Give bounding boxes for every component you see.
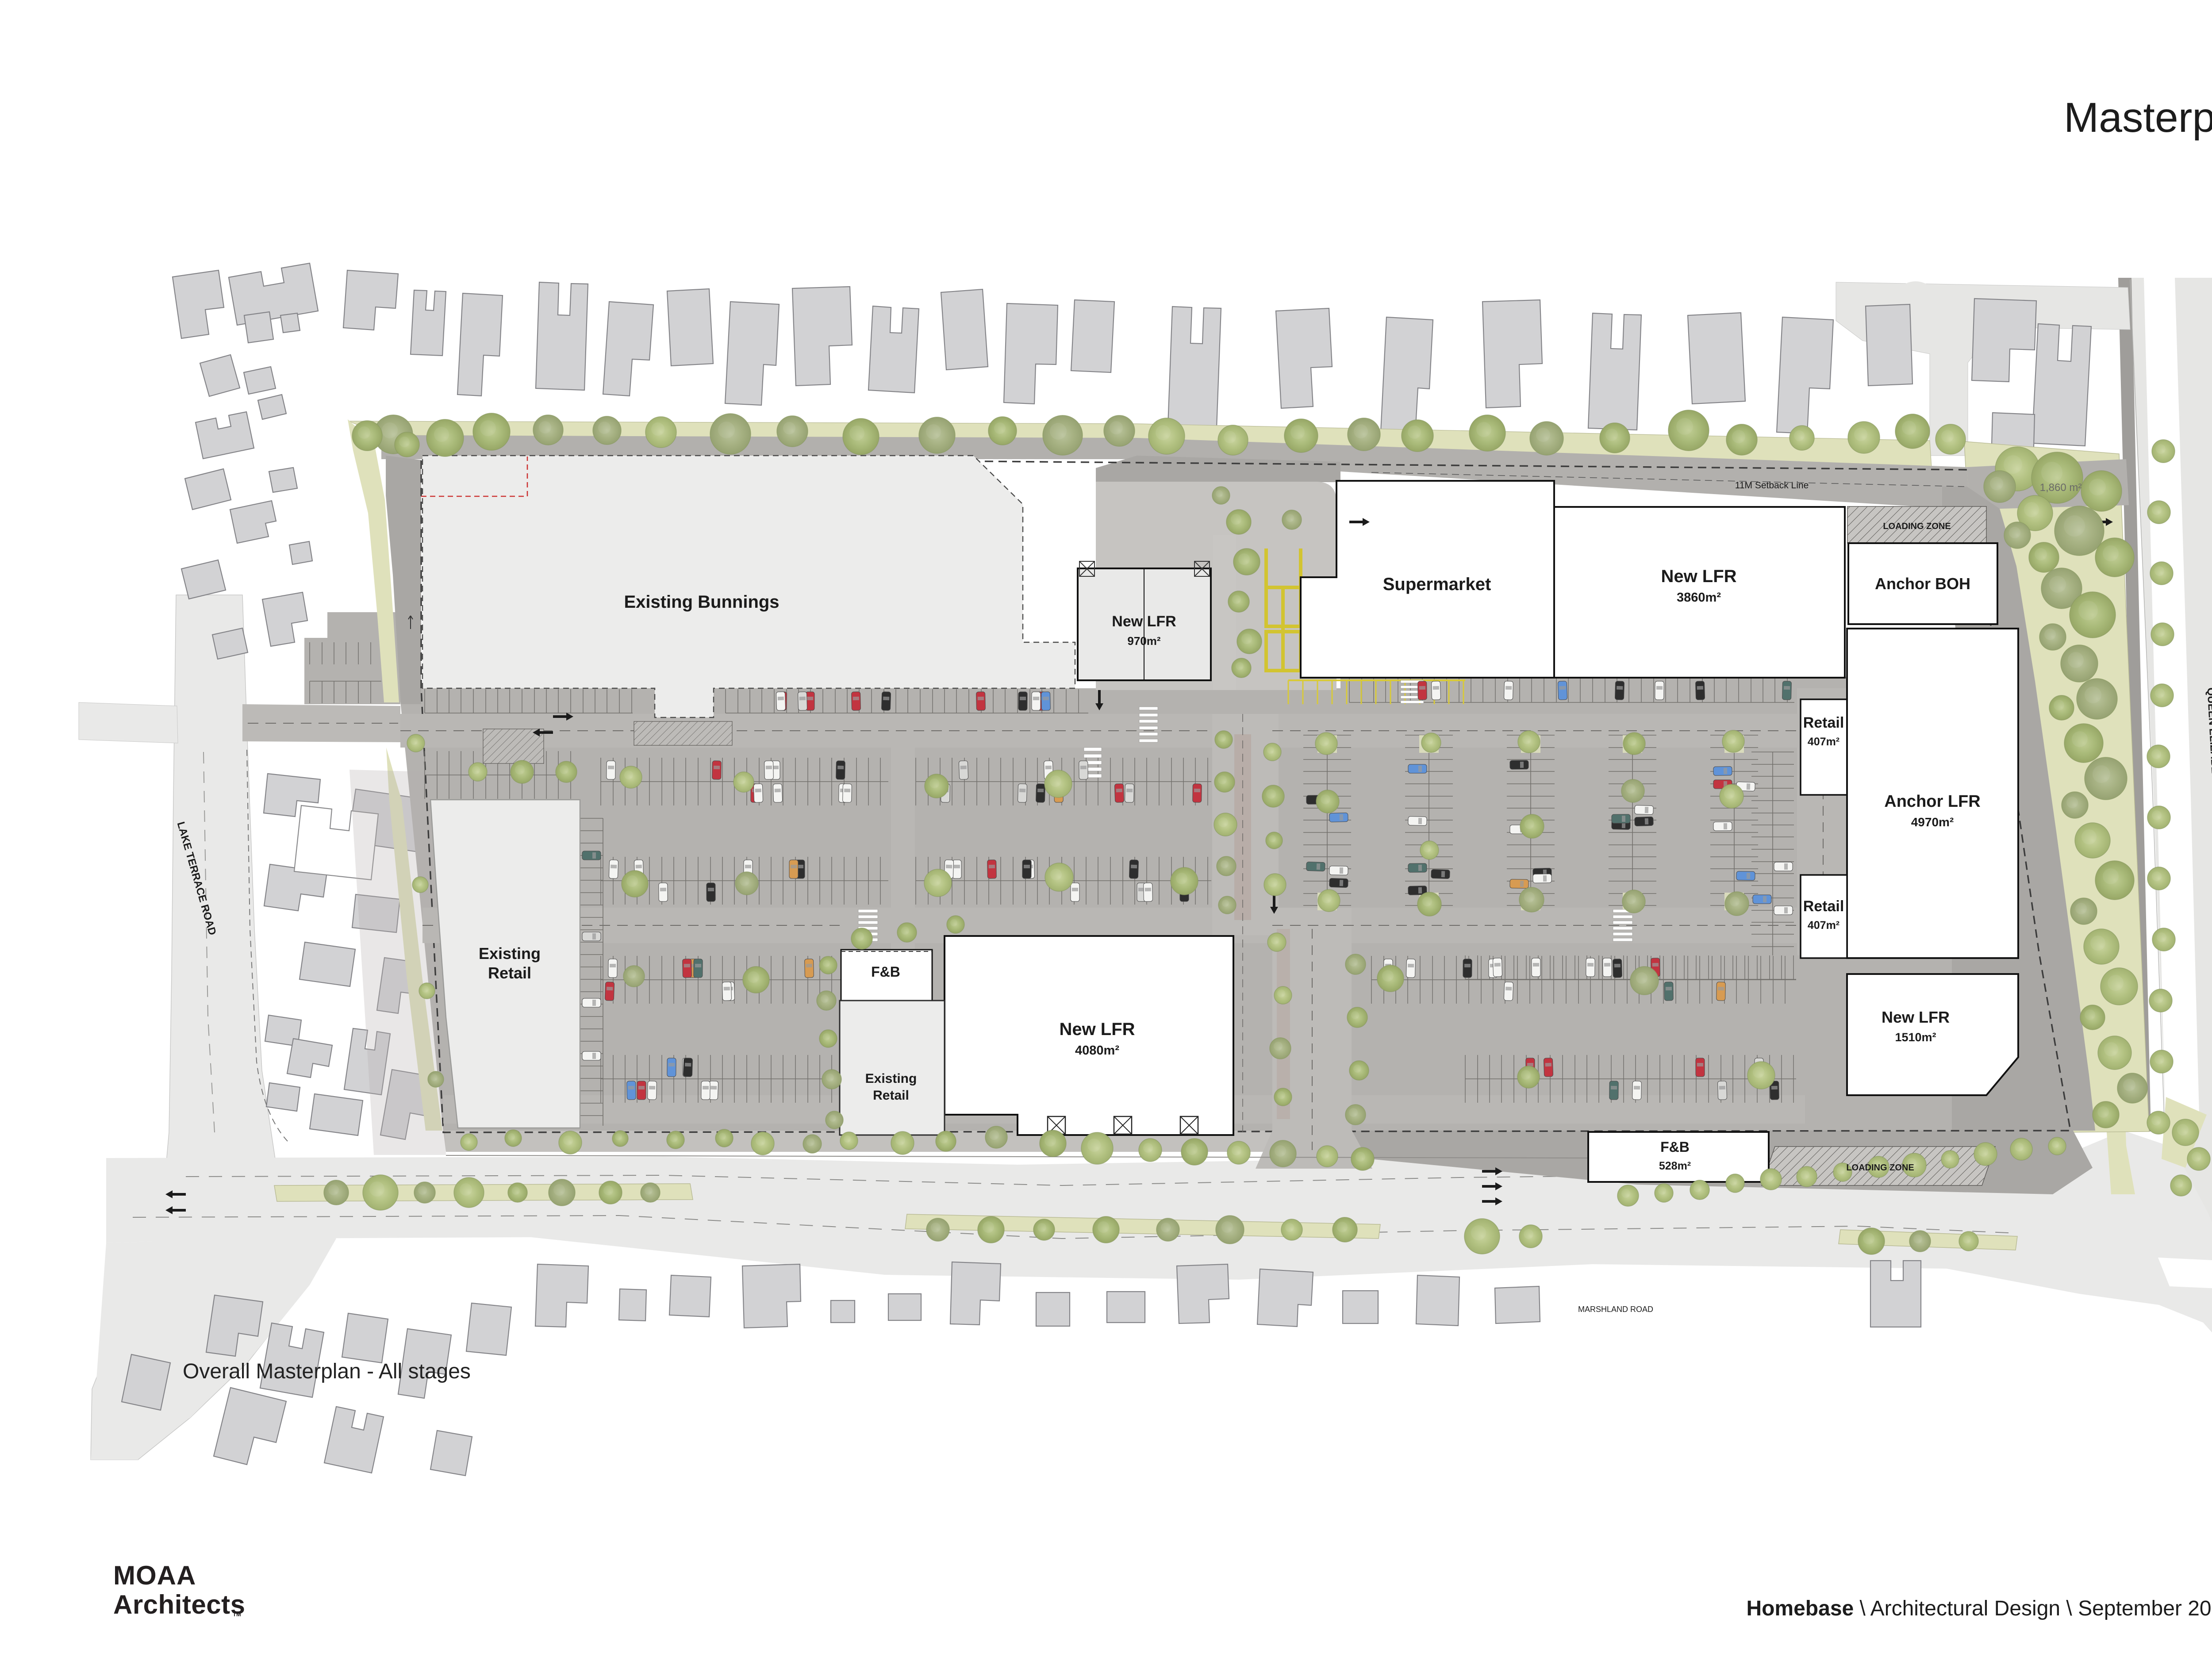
svg-text:4970m²: 4970m² xyxy=(1911,815,1954,829)
svg-text:New LFR: New LFR xyxy=(1882,1008,1950,1026)
svg-text:Existing: Existing xyxy=(865,1071,917,1086)
svg-text:Anchor LFR: Anchor LFR xyxy=(1884,792,1980,811)
svg-text:11M Setback Line: 11M Setback Line xyxy=(1735,480,1809,491)
svg-text:528m²: 528m² xyxy=(1659,1160,1691,1172)
svg-text:Overall Masterplan - All stage: Overall Masterplan - All stages xyxy=(183,1360,471,1383)
svg-text:407m²: 407m² xyxy=(1808,736,1839,748)
svg-text:F&B: F&B xyxy=(1660,1139,1690,1155)
svg-text:LOADING ZONE: LOADING ZONE xyxy=(1883,522,1951,531)
svg-text:3860m²: 3860m² xyxy=(1677,591,1721,605)
svg-text:1,860 m²: 1,860 m² xyxy=(2040,482,2082,494)
svg-text:Retail: Retail xyxy=(1803,898,1844,915)
svg-text:Architects: Architects xyxy=(113,1590,245,1619)
svg-text:Masterplan: Masterplan xyxy=(2064,94,2212,141)
svg-text:F&B: F&B xyxy=(871,964,900,980)
svg-text:Existing: Existing xyxy=(479,944,541,963)
svg-text:New LFR: New LFR xyxy=(1112,613,1176,630)
svg-text:LOADING ZONE: LOADING ZONE xyxy=(1846,1163,1914,1173)
svg-text:970m²: 970m² xyxy=(1127,634,1160,648)
svg-text:Supermarket: Supermarket xyxy=(1383,575,1491,594)
svg-text:4080m²: 4080m² xyxy=(1075,1043,1119,1058)
svg-text:407m²: 407m² xyxy=(1808,919,1839,932)
svg-text:Existing Bunnings: Existing Bunnings xyxy=(624,592,779,612)
svg-text:Retail: Retail xyxy=(873,1088,909,1103)
svg-text:Retail: Retail xyxy=(488,964,531,982)
svg-text:Anchor BOH: Anchor BOH xyxy=(1875,575,1970,593)
svg-text:New LFR: New LFR xyxy=(1661,567,1736,586)
svg-text:TM: TM xyxy=(233,1611,241,1618)
svg-text:1510m²: 1510m² xyxy=(1895,1031,1936,1044)
svg-text:MARSHLAND ROAD: MARSHLAND ROAD xyxy=(1578,1305,1653,1314)
svg-text:New LFR: New LFR xyxy=(1059,1020,1135,1039)
svg-text:Retail: Retail xyxy=(1803,714,1844,731)
svg-text:Homebase \ Architectural Desi: Homebase \ Architectural Design \ Septem… xyxy=(1746,1597,2212,1620)
svg-text:MOAA: MOAA xyxy=(113,1561,196,1590)
